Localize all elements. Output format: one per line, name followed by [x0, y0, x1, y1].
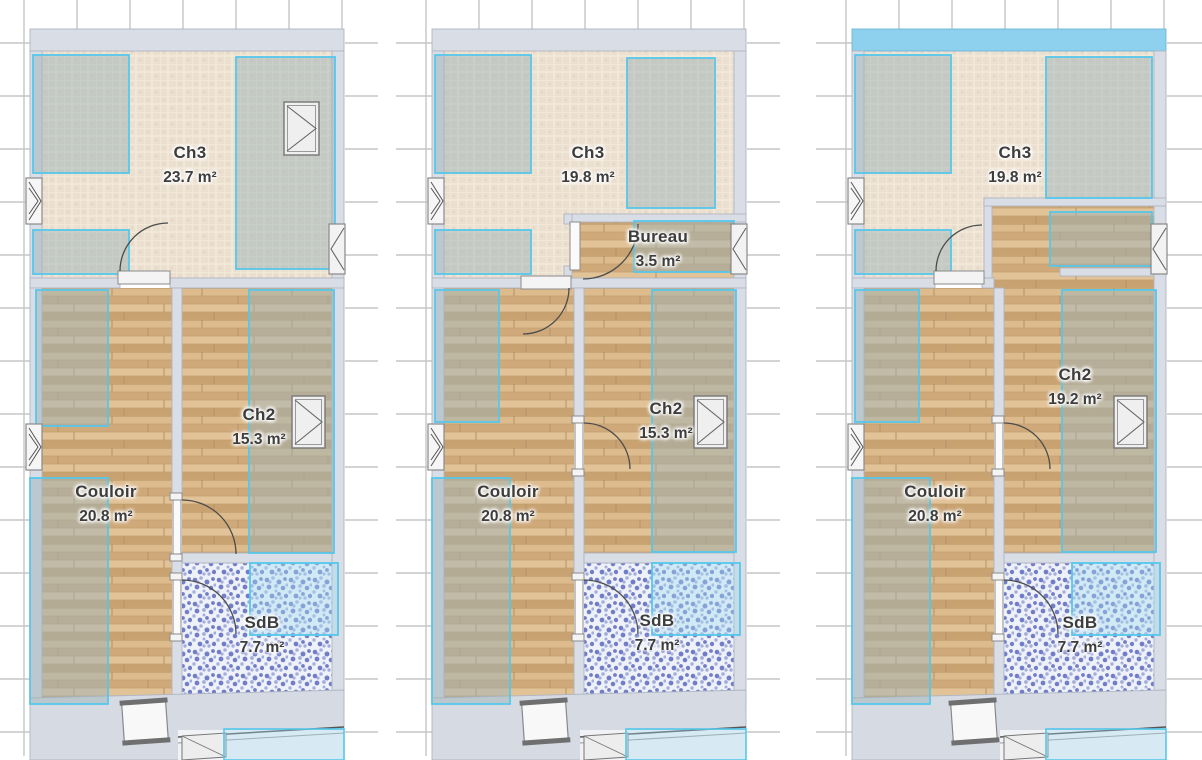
sdb-zone[interactable]	[250, 563, 338, 635]
velux-ch2	[1114, 396, 1147, 448]
french-window-2	[848, 424, 864, 470]
plan-3[interactable]	[816, 0, 1202, 760]
lower-room	[178, 727, 344, 760]
landing-window[interactable]	[948, 697, 999, 745]
sdb-zone[interactable]	[652, 563, 740, 635]
floorplan-canvas[interactable]: Ch3 23.7 m² Ch2 15.3 m² Couloir 20.8 m² …	[0, 0, 1202, 760]
velux-ch3	[284, 102, 319, 155]
right-wall-window	[1151, 224, 1167, 274]
french-window-2	[428, 424, 444, 470]
velux-ch2	[292, 396, 325, 448]
bureau-window	[731, 224, 747, 274]
plan-1[interactable]	[0, 0, 378, 760]
highlighted-wall[interactable]	[852, 29, 1166, 51]
landing-window[interactable]	[519, 697, 570, 745]
lower-room	[1000, 727, 1166, 760]
sdb-zone[interactable]	[1072, 563, 1160, 635]
plan-2[interactable]	[396, 0, 780, 760]
roof-windows[interactable]	[694, 396, 727, 448]
right-wall-window	[329, 224, 345, 274]
roof-windows[interactable]	[1114, 396, 1147, 448]
french-window-1	[26, 178, 42, 224]
velux-ch2	[694, 396, 727, 448]
french-window-1	[848, 178, 864, 224]
landing-window[interactable]	[119, 697, 170, 745]
french-window-1	[428, 178, 444, 224]
lower-room	[580, 727, 746, 760]
floorplans-svg	[0, 0, 1202, 760]
french-window-2	[26, 424, 42, 470]
